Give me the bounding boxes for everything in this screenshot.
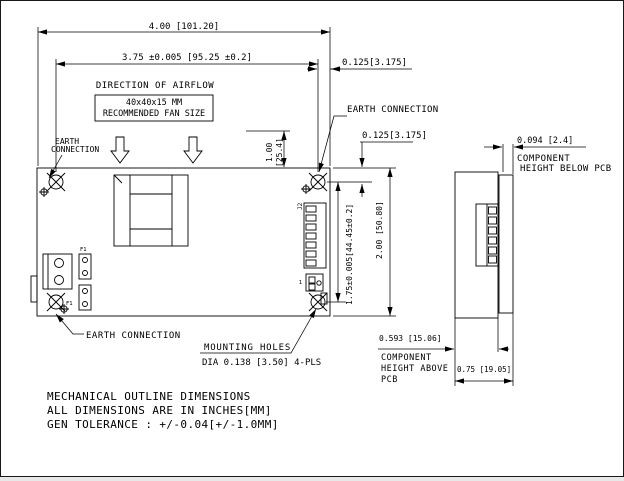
above-pcb-label-l2: HEIGHT ABOVE (381, 364, 448, 374)
transformer (114, 175, 188, 246)
side-connector (476, 204, 498, 266)
airflow-direction-label: DIRECTION OF AIRFLOW (96, 81, 214, 91)
mounting-holes-spec: DIA 0.138 [3.50] 4-PLS (202, 358, 321, 368)
earth-connection-label-bottom: EARTH CONNECTION (86, 331, 181, 341)
notes-line-1: MECHANICAL OUTLINE DIMENSIONS (47, 390, 251, 403)
dim-hole-edge-offset-v-text: 0.125[3.175] (362, 131, 427, 141)
ext-below-pcb (503, 144, 513, 174)
dim-overall-height-text: 2.00 [50.80] (375, 201, 384, 259)
earth-connection-label-left-l2: CONNECTION (51, 145, 99, 154)
ref-designator-f1-top: F1 (80, 247, 87, 253)
fan-size-line1: 40x40x15 MM (126, 98, 182, 108)
side-extension-lines (455, 313, 513, 386)
pcb-outline (37, 168, 330, 316)
ref-designator-f1-bottom: F1 (66, 301, 73, 307)
ext-offset-v (327, 168, 396, 182)
dim-fan-clearance-in-text: 1.00 (265, 143, 274, 162)
earth-connection-label-top: EARTH CONNECTION (347, 105, 439, 115)
leader-earth-top (319, 116, 347, 172)
airflow-arrow-right (184, 137, 202, 163)
below-pcb-label-l2: HEIGHT BELOW PCB (520, 164, 612, 174)
ref-designator-j2: J2 (297, 202, 304, 210)
leader-earth-bottom (56, 314, 84, 334)
dim-overall-width-text: 4.00 [101.20] (149, 22, 219, 32)
mounting-hole-top-right (309, 173, 327, 191)
notes-line-3: GEN TOLERANCE : +/-0.04[+/-1.0MM] (47, 418, 279, 431)
side-envelope (455, 172, 498, 318)
above-pcb-label-l1: COMPONENT (381, 353, 432, 363)
dim-hole-spacing-v-text: 1.75±0.005[44.45±0.2] (345, 204, 354, 305)
leader-earth-left (49, 155, 62, 178)
airflow-arrow-left (111, 137, 129, 163)
earth-pad-top-right (301, 184, 311, 194)
top-view (31, 95, 330, 316)
mounting-hole-top-left (47, 173, 65, 191)
mounting-hole-bottom-right (309, 293, 327, 311)
dim-above-pcb-text: 0.593 [15.06] (379, 334, 442, 343)
dim-hole-spacing-h-text: 3.75 ±0.005 [95.25 ±0.2] (122, 53, 252, 63)
fan-size-line2: RECOMMENDED FAN SIZE (103, 109, 205, 119)
notes-line-2: ALL DIMENSIONS ARE IN INCHES[MM] (47, 404, 272, 417)
annotations: 4.00 [101.20] 3.75 ±0.005 [95.25 ±0.2] 0… (47, 22, 612, 431)
pcb-section-hatch (499, 175, 513, 313)
above-pcb-label-l3: PCB (381, 375, 398, 385)
output-connector (304, 203, 326, 268)
dim-below-pcb-text: 0.094 [2.4] (517, 136, 573, 146)
mounting-hole-bottom-left (47, 293, 65, 311)
dim-fan-clearance-mm-text: [25.4] (275, 138, 284, 167)
side-view (455, 172, 513, 386)
mounting-holes-label: MOUNTING HOLES (204, 343, 291, 353)
dim-hole-edge-offset-h-text: 0.125[3.175] (342, 58, 407, 68)
ref-pin1-label: 1 (299, 280, 302, 286)
below-pcb-label-l1: COMPONENT (517, 154, 570, 164)
earth-pad-top-left (39, 187, 49, 197)
drawing-svg: 4.00 [101.20] 3.75 ±0.005 [95.25 ±0.2] 0… (0, 0, 624, 477)
mechanical-outline-drawing: 4.00 [101.20] 3.75 ±0.005 [95.25 ±0.2] 0… (0, 0, 624, 477)
aux-connector (306, 274, 327, 304)
fuse-components (79, 254, 91, 310)
dim-overall-depth-text: 0.75 [19.05] (457, 365, 511, 374)
